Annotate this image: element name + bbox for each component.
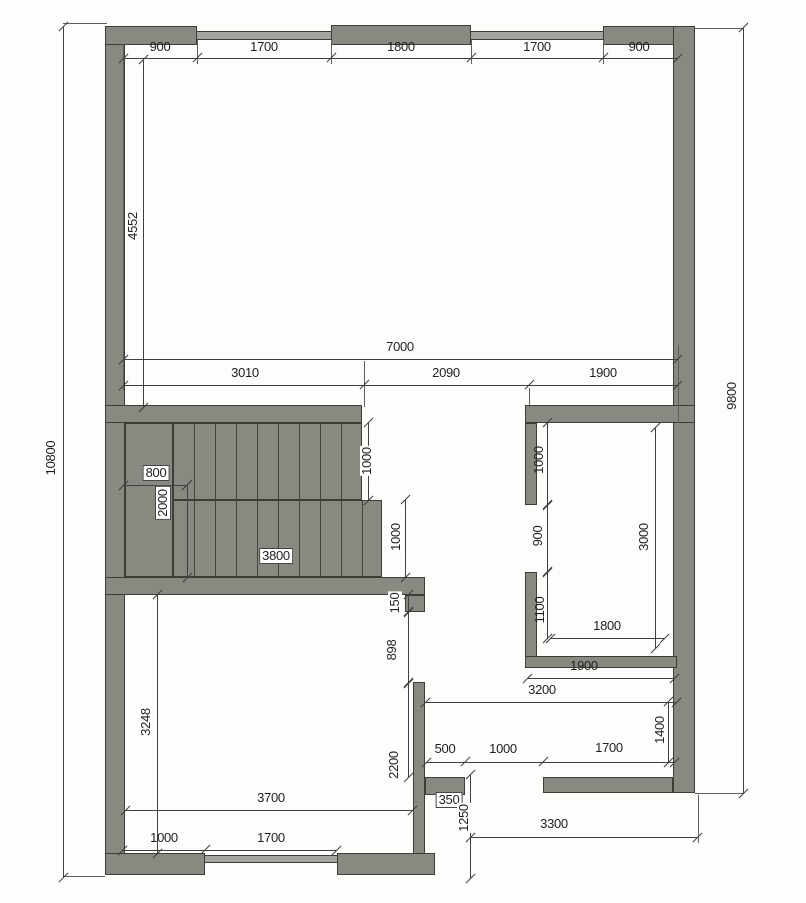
dim-line-9800 [743, 28, 744, 793]
extension-line [471, 40, 472, 64]
dim-label-top-1800: 1800 [387, 40, 415, 54]
dim-line-4552 [143, 60, 144, 407]
dim-label-10800: 10800 [44, 441, 58, 476]
extension-line [603, 40, 604, 64]
dim-line-2000 [187, 485, 188, 577]
dim-label-top-900-right: 900 [629, 40, 650, 54]
dim-line-7000 [123, 359, 678, 360]
extension-line [695, 28, 744, 29]
dim-line-3000 [655, 428, 656, 648]
dim-label-3800: 3800 [259, 548, 293, 564]
wall-left [105, 26, 125, 875]
window-bottom [205, 855, 337, 863]
dim-label-900-door: 900 [531, 526, 545, 547]
dim-line-1000-room [547, 423, 548, 505]
wall-porch-vertical [413, 682, 425, 875]
wall-stair-bottom [105, 577, 425, 595]
dim-line-1900-room [527, 678, 675, 679]
dim-label-1000-upper-flight: 1000 [360, 446, 374, 476]
dim-label-1700-bottom: 1700 [257, 831, 285, 845]
dim-label-1400: 1400 [653, 716, 667, 744]
dim-label-3000: 3000 [637, 523, 651, 551]
extension-line [63, 876, 105, 877]
dim-label-150: 150 [388, 592, 402, 615]
dim-label-9800: 9800 [725, 382, 739, 410]
dim-label-7000: 7000 [386, 340, 414, 354]
dim-line-10800 [63, 27, 64, 877]
dim-label-2090: 2090 [432, 366, 460, 380]
wall-right-room-bottom [525, 656, 677, 668]
dim-label-2200: 2200 [387, 751, 401, 779]
extension-line [197, 40, 198, 64]
dim-line-1400 [668, 702, 669, 762]
dim-line-3248 [157, 595, 158, 853]
dim-label-1700-hall: 1700 [595, 741, 623, 755]
dim-label-1800: 1800 [593, 619, 621, 633]
wall-bottom-right [337, 853, 435, 875]
dim-label-2000: 2000 [155, 486, 171, 520]
dim-line-900-door [547, 505, 548, 572]
stair-lower-flight [173, 500, 382, 577]
dim-label-898: 898 [385, 640, 399, 661]
extension-line [331, 40, 332, 64]
dim-line-898 [408, 612, 409, 683]
dim-label-800: 800 [143, 465, 170, 481]
dim-line-3300 [470, 837, 698, 838]
dim-label-1000-lower-flight: 1000 [389, 522, 403, 552]
dim-line-1000-lower-flight [405, 500, 406, 577]
dim-label-top-1700-right: 1700 [523, 40, 551, 54]
dim-label-top-1700-left: 1700 [250, 40, 278, 54]
dim-line-3200 [425, 702, 677, 703]
dim-label-3200: 3200 [528, 683, 556, 697]
extension-line [529, 388, 530, 407]
dim-label-1900-room: 1900 [570, 659, 598, 673]
dim-line-1000-1700-bottom [122, 850, 337, 851]
dim-line-3700 [125, 810, 413, 811]
dim-label-1100: 1100 [533, 597, 547, 624]
wall-hall-bottom [543, 777, 673, 793]
dim-label-top-900-left: 900 [150, 40, 171, 54]
extension-line [695, 793, 744, 794]
dim-label-1250: 1250 [457, 803, 471, 833]
dim-label-1900-top: 1900 [589, 366, 617, 380]
stair-upper-flight [173, 423, 362, 500]
dim-line-width-segments [123, 385, 678, 386]
dim-label-4552: 4552 [126, 212, 140, 240]
dim-line-1800 [550, 638, 665, 639]
extension-line [63, 23, 107, 24]
dim-label-3300: 3300 [540, 817, 568, 831]
dim-label-500: 500 [435, 742, 456, 756]
extension-line [123, 44, 124, 390]
dim-label-3010: 3010 [231, 366, 259, 380]
dim-line-2200 [408, 683, 409, 777]
floor-plan-canvas: 900 1700 1800 1700 900 7000 3010 2090 19… [0, 0, 806, 903]
dim-line-1100 [547, 572, 548, 638]
dim-label-3248: 3248 [139, 708, 153, 736]
dim-label-3700: 3700 [257, 791, 285, 805]
wall-mid-right [525, 405, 695, 423]
dim-label-1000-room: 1000 [532, 446, 546, 474]
dim-label-1000-bottom: 1000 [150, 831, 178, 845]
dim-label-1000-door: 1000 [489, 742, 517, 756]
dim-line-top-row [123, 58, 678, 59]
